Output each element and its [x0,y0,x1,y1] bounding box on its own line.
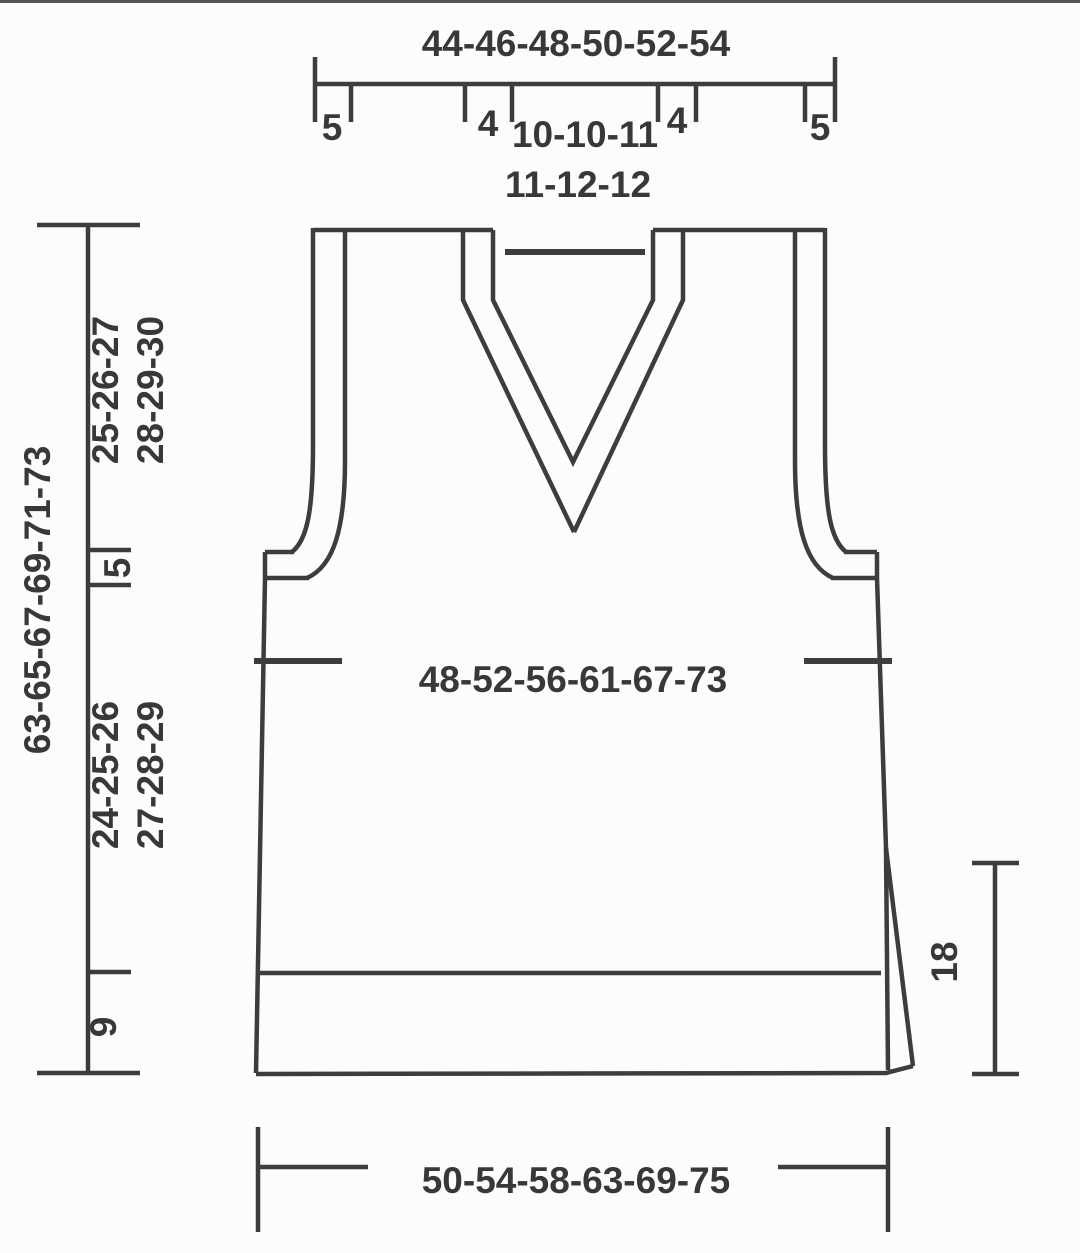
top-ruler: 44-46-48-50-52-54 5 4 10-10-11 4 5 11-12… [315,23,835,205]
left-upper-section-line1: 25-26-27 [85,316,126,464]
left-lower-section-line1: 24-25-26 [85,701,126,849]
body-left-edge [256,578,265,1073]
top-right-shoulder-label: 4 [667,100,688,141]
left-armhole-band-label: 5 [97,558,138,579]
right-armhole-outer [825,228,846,552]
top-neck-width-line2: 11-12-12 [505,164,651,205]
v-neck-inner-edge [493,230,653,462]
bottom-ruler: 50-54-58-63-69-75 [258,1127,888,1232]
right-ruler: 18 [924,863,1019,1074]
garment-outline: 48-52-56-61-67-73 [254,228,913,1074]
side-slit-line [886,848,913,1066]
slit-length-label: 18 [924,941,965,982]
hem-width-label: 50-54-58-63-69-75 [422,1160,731,1201]
vest-schematic-drawing: 44-46-48-50-52-54 5 4 10-10-11 4 5 11-12… [0,0,1080,1253]
left-armhole-outer [292,228,313,552]
top-total-width-label: 44-46-48-50-52-54 [422,23,731,64]
left-armhole-steps [265,552,309,578]
top-left-shoulder-label: 4 [478,103,499,144]
left-lower-section-line2: 27-28-29 [130,701,171,849]
photo-top-edge [0,0,1080,3]
v-neck-outer-edge-right [574,230,683,532]
right-armhole-steps [831,552,877,578]
left-hem-label: 9 [83,1017,124,1038]
top-right-edge-label: 5 [810,107,831,148]
top-ruler-end-ticks [315,57,835,122]
left-total-length-label: 63-65-67-69-71-73 [17,446,58,755]
left-upper-section-line2: 28-29-30 [130,316,171,464]
knitting-schematic-page: 44-46-48-50-52-54 5 4 10-10-11 4 5 11-12… [0,0,1080,1253]
right-armhole-inner [795,228,833,578]
chest-width-label: 48-52-56-61-67-73 [419,659,728,700]
left-ruler: 63-65-67-69-71-73 25-26-27 28-29-30 5 24… [17,225,171,1073]
bottom-hem-line [256,1066,913,1074]
top-left-edge-label: 5 [322,107,343,148]
body-right-edge [877,578,888,1070]
v-neck-outer-edge-left [463,230,574,532]
top-neck-width-line1: 10-10-11 [512,114,658,155]
